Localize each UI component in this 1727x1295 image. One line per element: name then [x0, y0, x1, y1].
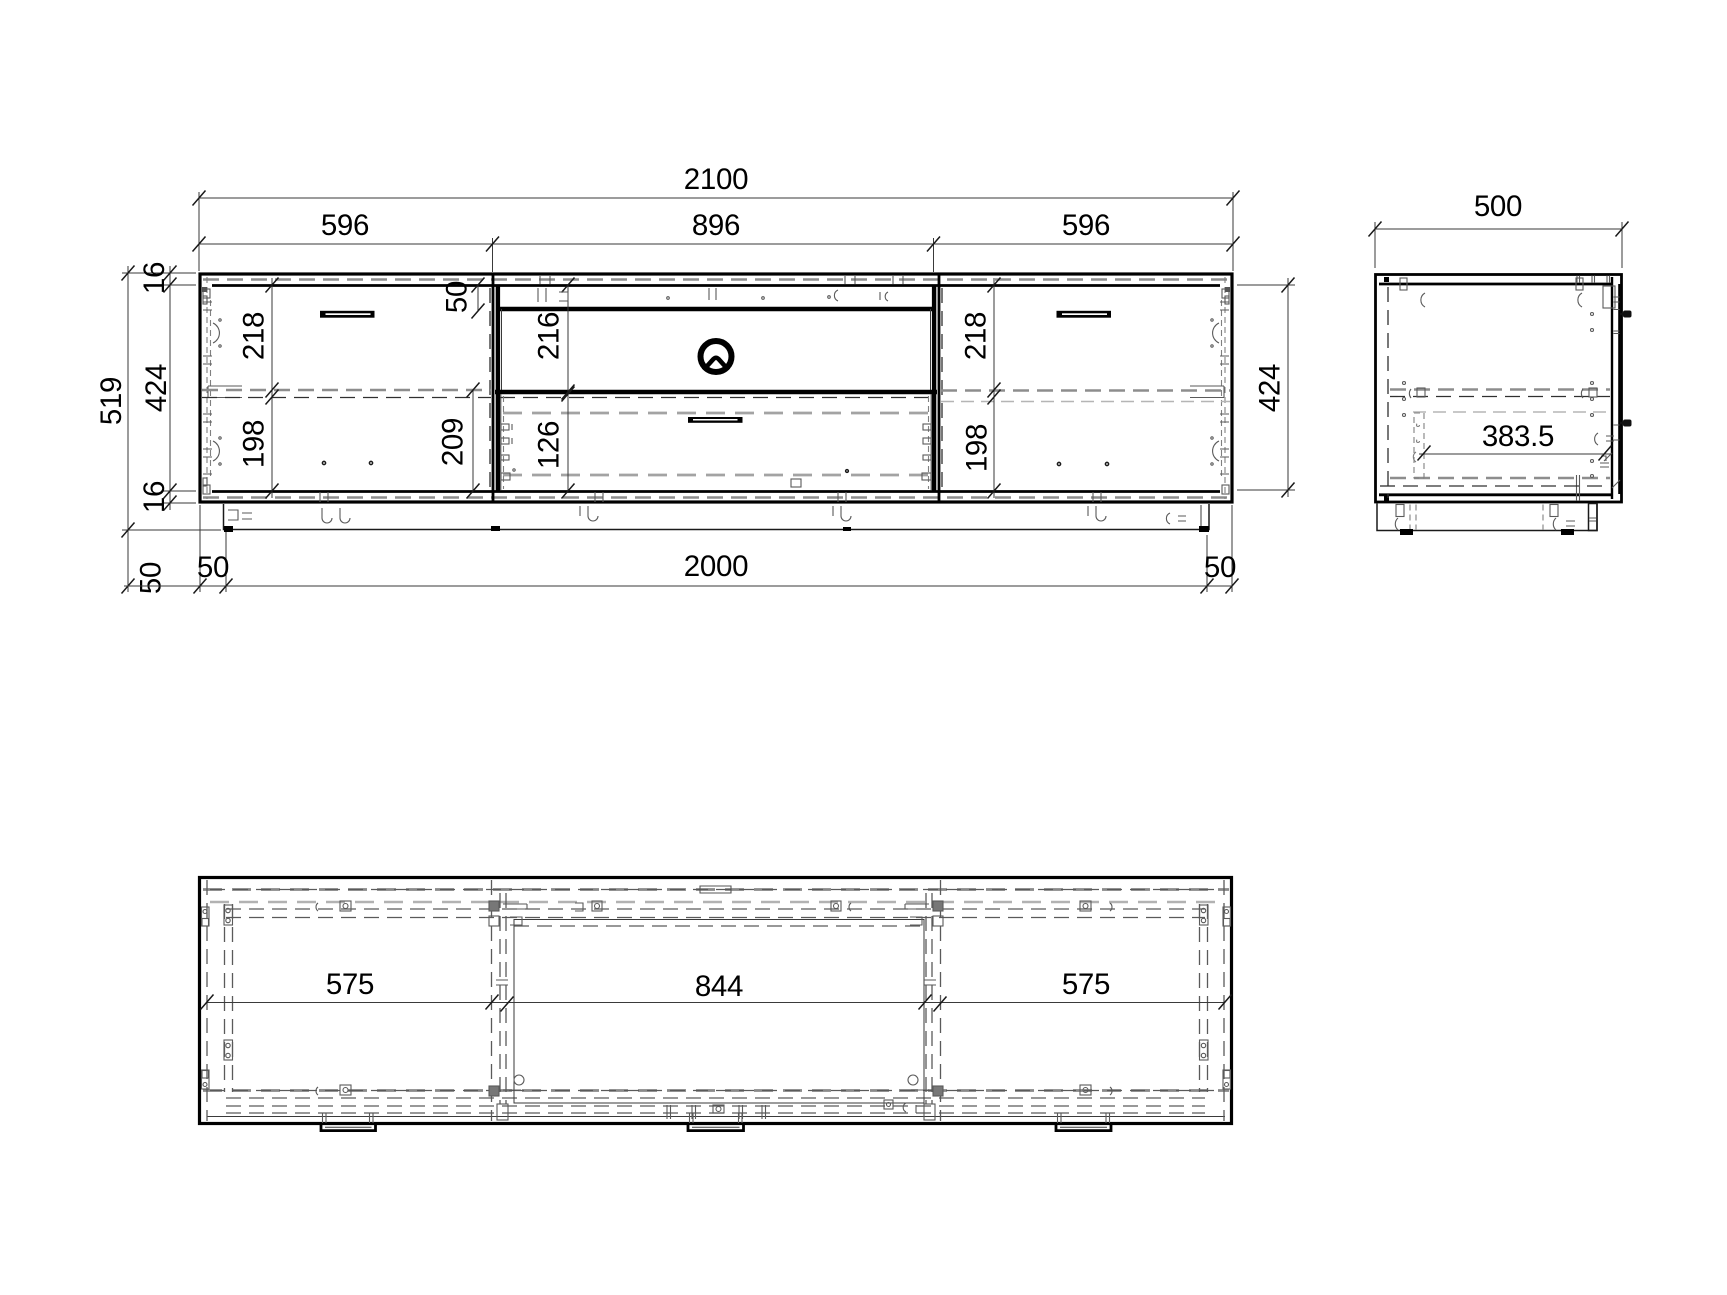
svg-text:16: 16	[138, 481, 171, 513]
svg-text:519: 519	[95, 377, 128, 425]
svg-text:50: 50	[1204, 551, 1236, 584]
svg-text:424: 424	[1254, 364, 1287, 412]
svg-text:50: 50	[441, 281, 474, 313]
svg-text:218: 218	[960, 312, 993, 360]
svg-text:575: 575	[1062, 968, 1110, 1001]
svg-text:596: 596	[1062, 209, 1110, 242]
svg-text:198: 198	[961, 424, 994, 472]
svg-text:209: 209	[437, 418, 470, 466]
svg-text:383.5: 383.5	[1482, 420, 1554, 453]
svg-text:198: 198	[238, 420, 271, 468]
svg-text:424: 424	[140, 364, 173, 412]
svg-text:575: 575	[326, 968, 374, 1001]
svg-text:500: 500	[1474, 190, 1522, 223]
svg-text:16: 16	[138, 262, 171, 294]
svg-text:50: 50	[135, 562, 168, 594]
svg-text:126: 126	[533, 421, 566, 469]
svg-text:50: 50	[197, 551, 229, 584]
svg-text:596: 596	[321, 209, 369, 242]
svg-text:2000: 2000	[684, 550, 748, 583]
svg-text:2100: 2100	[684, 163, 748, 196]
svg-text:218: 218	[238, 312, 271, 360]
svg-text:896: 896	[692, 209, 740, 242]
svg-text:844: 844	[695, 970, 743, 1003]
svg-text:216: 216	[533, 312, 566, 360]
